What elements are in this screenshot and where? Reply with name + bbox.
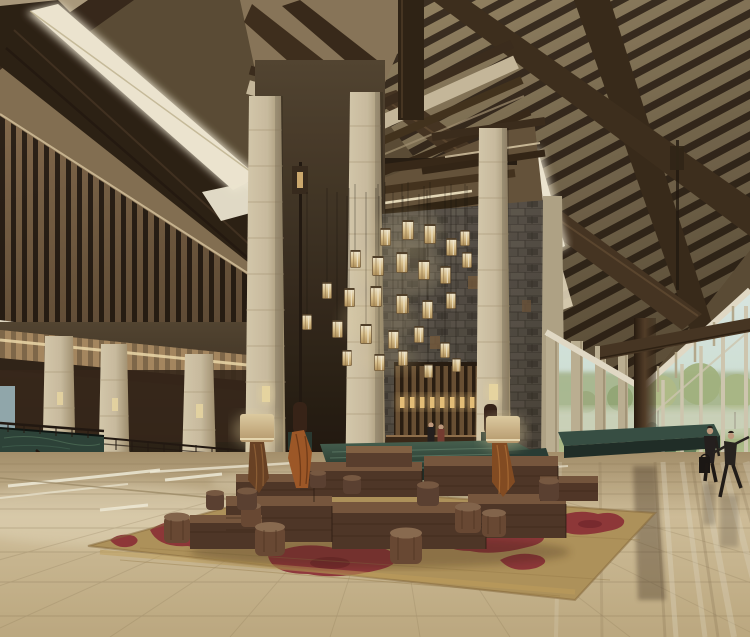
vignette	[0, 0, 750, 637]
lobby-scene	[0, 0, 750, 637]
lobby-rendering	[0, 0, 750, 637]
